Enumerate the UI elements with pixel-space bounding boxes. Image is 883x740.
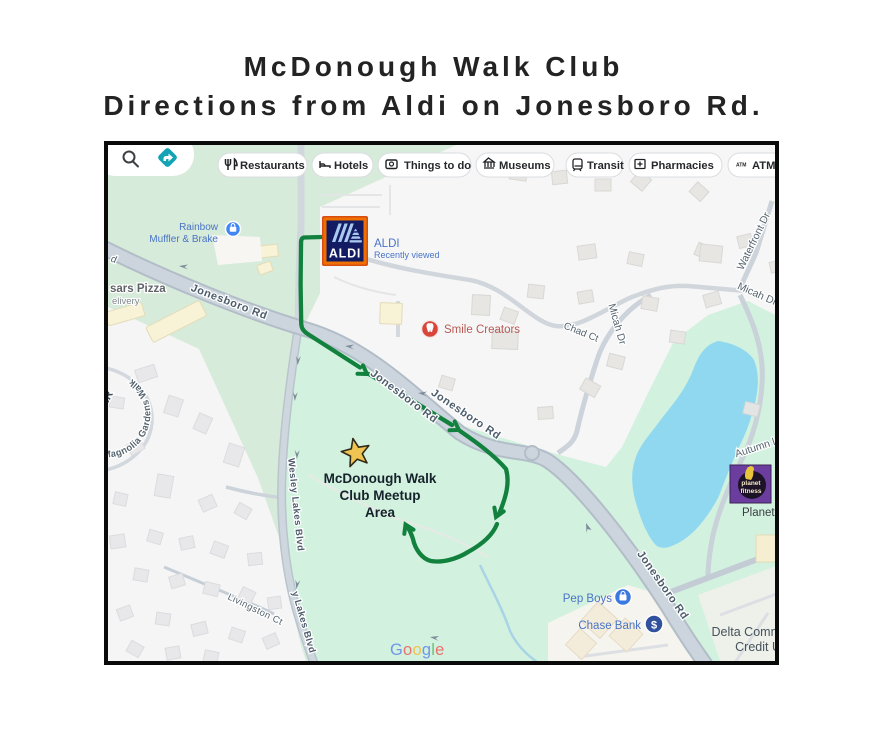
- svg-text:Rainbow: Rainbow: [179, 222, 219, 233]
- svg-text:elivery: elivery: [112, 296, 140, 307]
- svg-text:ATMs: ATMs: [752, 160, 775, 172]
- svg-text:Chase Bank: Chase Bank: [578, 620, 641, 632]
- svg-text:planet: planet: [741, 480, 761, 487]
- svg-text:fitness: fitness: [741, 488, 762, 495]
- svg-text:Transit: Transit: [587, 160, 624, 172]
- svg-text:ALDI: ALDI: [374, 238, 400, 250]
- svg-text:sars Pizza: sars Pizza: [110, 283, 166, 295]
- svg-text:Restaurants: Restaurants: [240, 160, 305, 172]
- svg-text:Delta Comm: Delta Comm: [712, 625, 775, 639]
- svg-text:Planet: Planet: [742, 507, 775, 519]
- svg-text:Credit U: Credit U: [735, 640, 775, 654]
- svg-text:Recently viewed: Recently viewed: [374, 250, 440, 260]
- svg-text:Museums: Museums: [499, 160, 551, 172]
- svg-text:McDonough Walk: McDonough Walk: [324, 471, 437, 486]
- svg-text:ALDI: ALDI: [329, 247, 361, 261]
- svg-text:$: $: [651, 620, 657, 632]
- svg-text:Google: Google: [390, 641, 444, 659]
- svg-text:Pharmacies: Pharmacies: [651, 160, 714, 172]
- svg-text:Hotels: Hotels: [334, 160, 368, 172]
- svg-text:Muffler & Brake: Muffler & Brake: [149, 234, 218, 245]
- svg-text:Pep Boys: Pep Boys: [563, 593, 612, 605]
- svg-text:Area: Area: [365, 505, 396, 520]
- svg-text:Things to do: Things to do: [404, 160, 471, 172]
- svg-text:Smile Creators: Smile Creators: [444, 324, 520, 336]
- svg-text:Club Meetup: Club Meetup: [340, 488, 421, 503]
- svg-text:ATM: ATM: [736, 163, 746, 169]
